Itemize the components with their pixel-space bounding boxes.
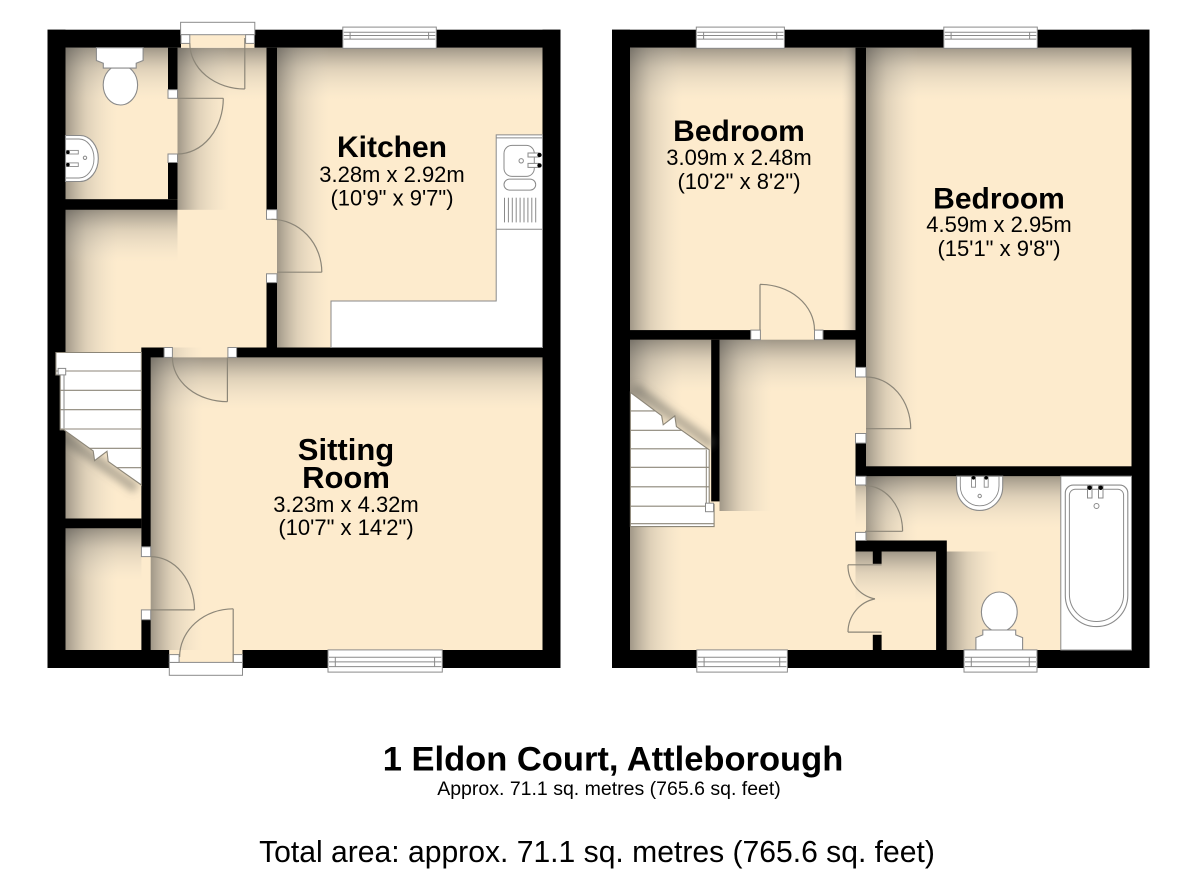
svg-text:(10'2" x 8'2"): (10'2" x 8'2") (677, 169, 800, 194)
svg-text:1 Eldon Court, Attleborough: 1 Eldon Court, Attleborough (383, 741, 844, 779)
svg-text:(15'1" x 9'8"): (15'1" x 9'8") (937, 236, 1060, 261)
svg-text:4.59m x 2.95m: 4.59m x 2.95m (926, 212, 1072, 237)
svg-text:Approx. 71.1 sq. metres (765.6: Approx. 71.1 sq. metres (765.6 sq. feet) (437, 778, 781, 800)
svg-text:3.23m x 4.32m: 3.23m x 4.32m (273, 492, 419, 517)
svg-text:3.09m x 2.48m: 3.09m x 2.48m (666, 145, 812, 170)
svg-text:Kitchen: Kitchen (337, 131, 447, 164)
svg-text:Bedroom: Bedroom (673, 115, 805, 148)
svg-text:Bedroom: Bedroom (933, 183, 1065, 216)
svg-text:3.28m x 2.92m: 3.28m x 2.92m (319, 162, 465, 187)
svg-text:(10'9" x 9'7"): (10'9" x 9'7") (330, 186, 453, 211)
svg-text:Total area: approx. 71.1 sq. m: Total area: approx. 71.1 sq. metres (765… (259, 836, 935, 869)
svg-text:(10'7" x 14'2"): (10'7" x 14'2") (278, 515, 413, 540)
svg-text:Room: Room (302, 460, 390, 495)
